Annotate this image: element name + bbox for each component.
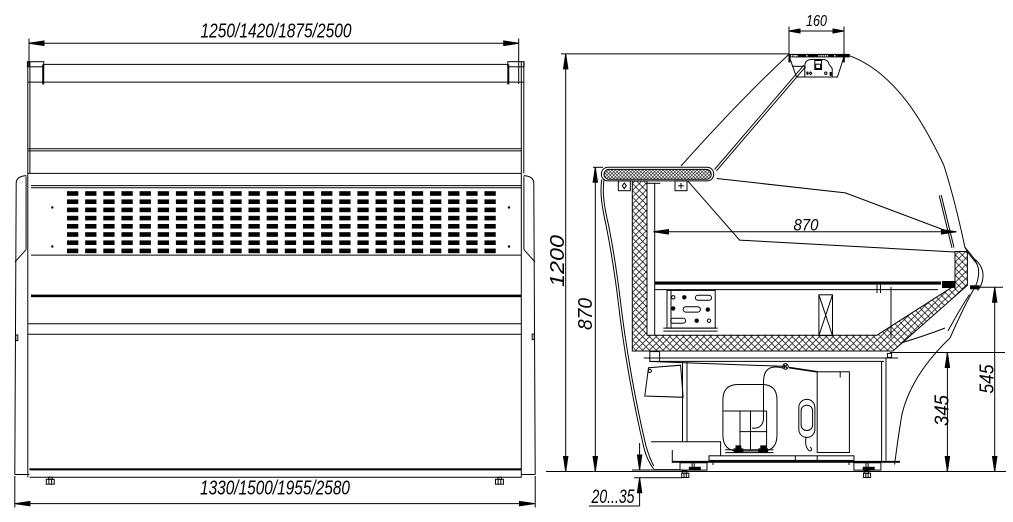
svg-text:545: 545 [977, 364, 999, 394]
svg-text:345: 345 [932, 394, 954, 426]
svg-text:160: 160 [806, 13, 827, 30]
svg-text:20...35: 20...35 [591, 487, 635, 508]
svg-text:1250/1420/1875/2500: 1250/1420/1875/2500 [201, 21, 352, 43]
svg-text:1200: 1200 [547, 235, 569, 287]
svg-text:870: 870 [794, 216, 819, 235]
svg-text:1330/1500/1955/2580: 1330/1500/1955/2580 [200, 478, 350, 500]
svg-text:870: 870 [575, 298, 597, 330]
